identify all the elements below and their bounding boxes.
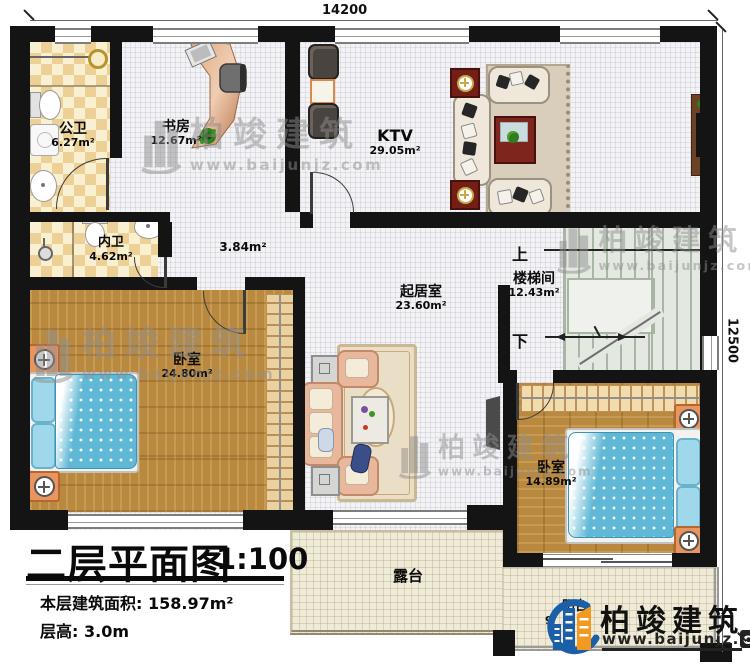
- wardrobe-left: [266, 294, 295, 512]
- stair-divider: [651, 224, 653, 372]
- wall-segment: [110, 42, 122, 158]
- towel-hook-icon: [88, 49, 108, 69]
- wall-segment: [245, 277, 305, 290]
- wall-segment: [672, 553, 717, 567]
- ktv-speaker-group: [308, 42, 338, 137]
- dimension-line-right: [722, 30, 723, 652]
- wall-segment: [300, 212, 313, 228]
- pillow: [31, 423, 56, 469]
- stair-down-label: 下: [512, 328, 528, 352]
- wall-segment: [469, 26, 560, 42]
- brand-logo: 柏竣建筑 www.baijunjz.com: [536, 592, 750, 662]
- ktv-sofa-set: [450, 62, 568, 214]
- nightstand: [28, 344, 60, 375]
- pillow: [676, 438, 701, 486]
- lamp-icon: [679, 409, 699, 429]
- wall-segment: [503, 553, 543, 567]
- window: [153, 28, 258, 44]
- study-chair: [220, 64, 246, 92]
- bed-blanket: [55, 374, 137, 469]
- wall-segment: [30, 277, 197, 290]
- title-block: 二层平面图 1:100 本层建筑面积: 158.97m² 层高: 3.0m: [0, 530, 290, 664]
- ktv-side-table: [450, 180, 480, 210]
- title-underline: [26, 576, 284, 581]
- nightstand: [28, 471, 60, 502]
- wall-segment: [10, 510, 68, 530]
- room-label-stairwell: 楼梯间 12.43m²: [488, 271, 580, 300]
- ktv-sofa-top: [488, 66, 550, 104]
- stair-arrowhead: [618, 333, 627, 341]
- person-figure: [318, 428, 334, 452]
- shower-stem: [43, 238, 45, 247]
- room-label-terrace: 露台: [368, 568, 448, 585]
- wall-segment: [91, 26, 153, 42]
- floor-area-line: 本层建筑面积: 158.97m²: [40, 590, 233, 614]
- page-title: 二层平面图: [26, 532, 231, 590]
- ktv-sofa-left: [453, 94, 491, 186]
- wardrobe-rod: [279, 295, 281, 511]
- title-underline-thin: [26, 584, 284, 585]
- towel-bar: [30, 56, 92, 58]
- living-sofa: [302, 382, 343, 466]
- dimension-tick: [23, 9, 34, 20]
- stair-arrowhead: [556, 333, 565, 341]
- wall-segment: [10, 26, 30, 530]
- room-label-private-bath: 内卫 4.62m²: [76, 236, 146, 264]
- room-label-study: 书房 12.67m²: [136, 119, 216, 148]
- drawing-scale: 1:100: [216, 542, 308, 576]
- window: [333, 510, 467, 525]
- brand-url-underline: [602, 648, 742, 651]
- room-label-living: 起居室 23.60m²: [371, 284, 471, 313]
- dimension-tick: [715, 21, 726, 32]
- dimension-line-top: [30, 20, 718, 21]
- room-label-hallway: 3.84m²: [200, 241, 286, 255]
- dimension-width: 14200: [322, 3, 367, 18]
- floor-height-line: 层高: 3.0m: [40, 618, 129, 642]
- living-sofa-set: [300, 315, 420, 505]
- toilet: [30, 90, 60, 118]
- pillow: [31, 377, 56, 423]
- dimension-height: 12500: [725, 311, 740, 371]
- wall-segment: [258, 26, 335, 42]
- sink: [30, 170, 57, 202]
- room-label-bedroom-right: 卧室 14.89m²: [501, 460, 601, 489]
- wall-segment: [30, 212, 170, 222]
- living-side-table: [311, 355, 340, 385]
- flowers-icon: [361, 406, 368, 413]
- wall-segment: [503, 370, 517, 383]
- ktv-side-table: [450, 68, 480, 98]
- wall-segment: [350, 212, 703, 228]
- bedroom-left-furniture: [28, 290, 138, 500]
- room-label-bedroom-left: 卧室 24.80m²: [137, 352, 237, 381]
- av-box: [310, 79, 335, 104]
- room-label-public-bath: 公卫 6.27m²: [38, 121, 108, 150]
- wall-segment: [243, 510, 333, 530]
- flowers-icon: [363, 425, 368, 430]
- stair-up-label: 上: [512, 241, 528, 265]
- window: [702, 336, 719, 370]
- wall-segment: [285, 42, 300, 212]
- plant-icon: [507, 131, 519, 143]
- flowers-icon: [369, 411, 375, 417]
- window: [335, 28, 469, 44]
- window: [560, 28, 660, 44]
- window: [68, 514, 243, 529]
- window: [55, 28, 91, 44]
- living-armchair: [337, 350, 379, 388]
- ktv-sofa-bottom: [488, 178, 552, 216]
- wall-segment: [467, 505, 517, 530]
- dimension-tick: [707, 9, 718, 20]
- wall-segment: [293, 290, 305, 512]
- brand-url: www.baijunjz.com: [602, 630, 750, 648]
- lamp-icon: [34, 476, 55, 497]
- room-label-ktv: KTV 29.05m²: [345, 127, 445, 158]
- bath-partition: [30, 85, 110, 87]
- lamp-icon: [679, 531, 699, 551]
- wall-segment: [700, 26, 717, 567]
- brand-logo-icon: [540, 598, 600, 660]
- floor-stairs: [563, 224, 704, 372]
- speaker: [308, 103, 339, 139]
- lamp-icon: [34, 349, 55, 370]
- floor-plan-canvas: 上 下 公卫 6.27m² 书房 12.67m² KTV 29.05m² 内卫 …: [0, 0, 750, 664]
- wall-segment: [158, 222, 172, 257]
- shower-head-icon: [38, 246, 53, 261]
- sliding-door: [543, 554, 672, 567]
- wall-corner-block: [493, 630, 515, 656]
- wall-segment: [553, 370, 703, 383]
- wall-tv-panel: [486, 396, 500, 450]
- living-side-table: [311, 466, 340, 496]
- ktv-coffee-table: [494, 116, 536, 164]
- living-coffee-table: [351, 396, 389, 444]
- speaker: [308, 44, 339, 80]
- stair-up-line: [544, 249, 700, 251]
